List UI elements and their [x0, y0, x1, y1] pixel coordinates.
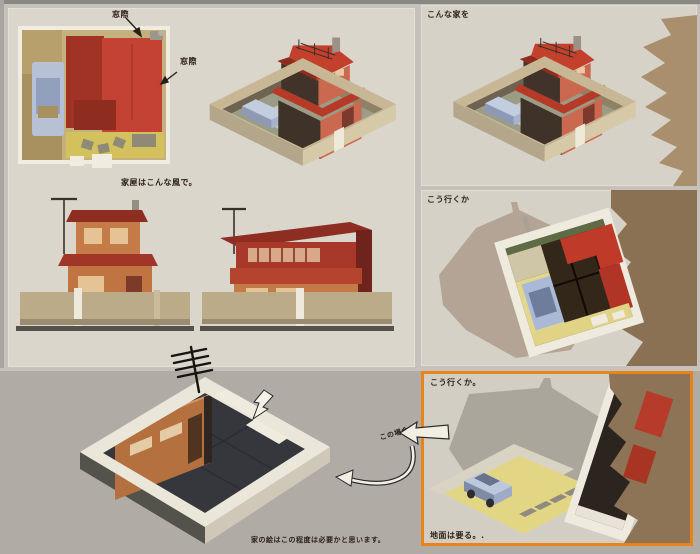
ground-scene-illustration [424, 374, 690, 543]
side-elevation-illustration [200, 200, 396, 340]
iso-house-with-map-scrap [421, 5, 697, 186]
panel-a-label: こんな家を [427, 9, 470, 20]
plan-window-label-right: 窓際 [180, 56, 197, 67]
plan-window-label-top: 窓際 [112, 9, 129, 20]
overview-caption: 家屋はこんな風で。 [121, 177, 197, 188]
rotated-plan-illustration [421, 190, 697, 366]
curved-arrow-icon [336, 446, 413, 486]
scan-edge [0, 0, 700, 4]
overview-panel: 窓際 窓際 [8, 8, 415, 367]
target-house-panel: こんな家を [421, 5, 697, 186]
panel-b-label: こう行くか [427, 194, 470, 205]
scanned-illustration-page: { "page": { "bg_bottom": "#b0aca5", "bg_… [0, 0, 700, 554]
case-label: この場合 [379, 425, 411, 443]
top-view-attempt-panel: こう行くか [421, 190, 697, 366]
torn-map-scrap [641, 15, 697, 186]
workspace-caption: 家の絵はこの程度は必要かと思います。 [251, 535, 385, 545]
open-box-model-illustration [0, 367, 420, 554]
floor-plan-illustration [14, 20, 184, 170]
scan-edge [0, 0, 4, 368]
pointer-arrow-icon [253, 390, 273, 419]
ground-note: 地面は要る。. [430, 530, 485, 541]
ground-view-attempt-panel: こう行くか。 地面は要る。. [421, 371, 693, 546]
iso-house-illustration [195, 12, 410, 184]
front-elevation-illustration [14, 188, 196, 340]
panel-c-label: こう行くか。 [430, 377, 481, 388]
